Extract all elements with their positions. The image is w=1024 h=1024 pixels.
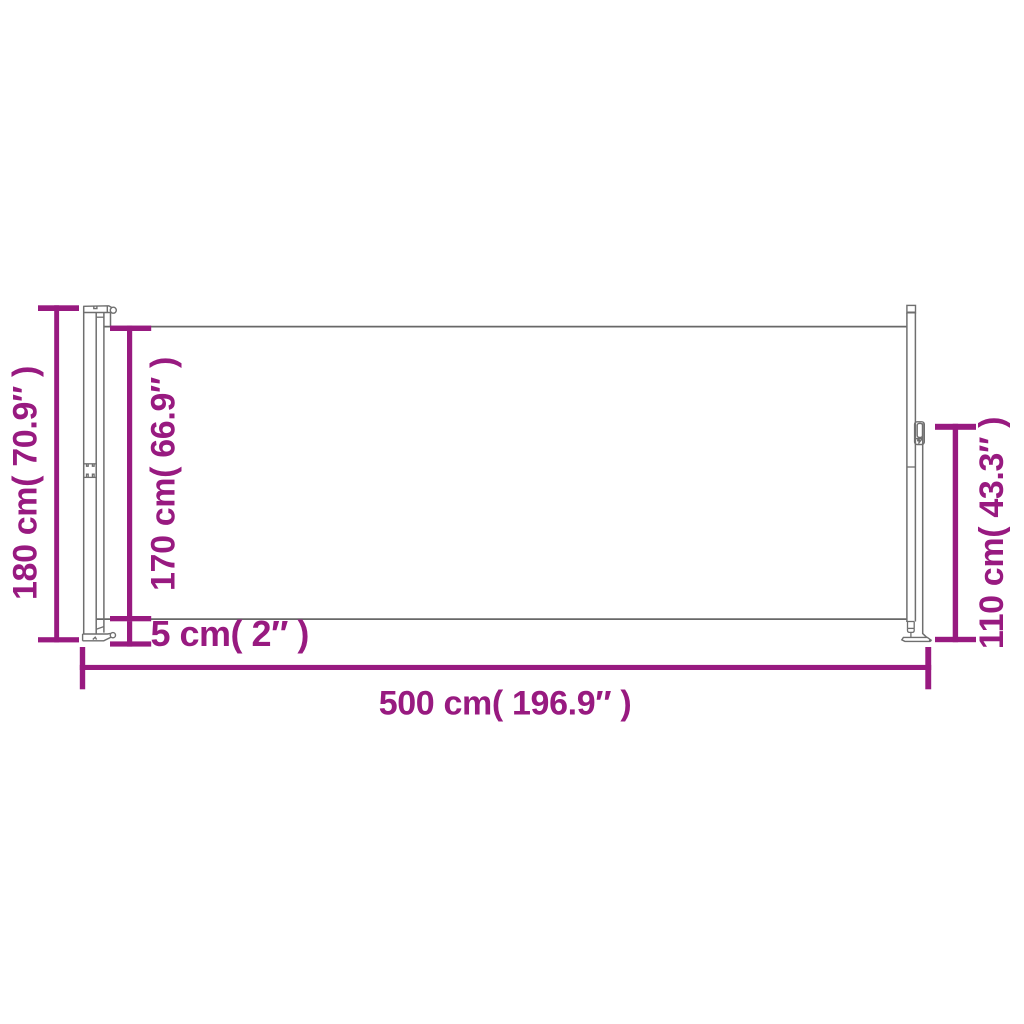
svg-text:110 cm( 43.3″ ): 110 cm( 43.3″ ) xyxy=(973,417,1011,649)
svg-text:5 cm( 2″ ): 5 cm( 2″ ) xyxy=(151,613,309,654)
svg-text:170 cm( 66.9″ ): 170 cm( 66.9″ ) xyxy=(144,357,182,591)
svg-text:180 cm( 70.9″ ): 180 cm( 70.9″ ) xyxy=(6,366,44,600)
svg-text:500 cm( 196.9″ ): 500 cm( 196.9″ ) xyxy=(379,685,632,723)
